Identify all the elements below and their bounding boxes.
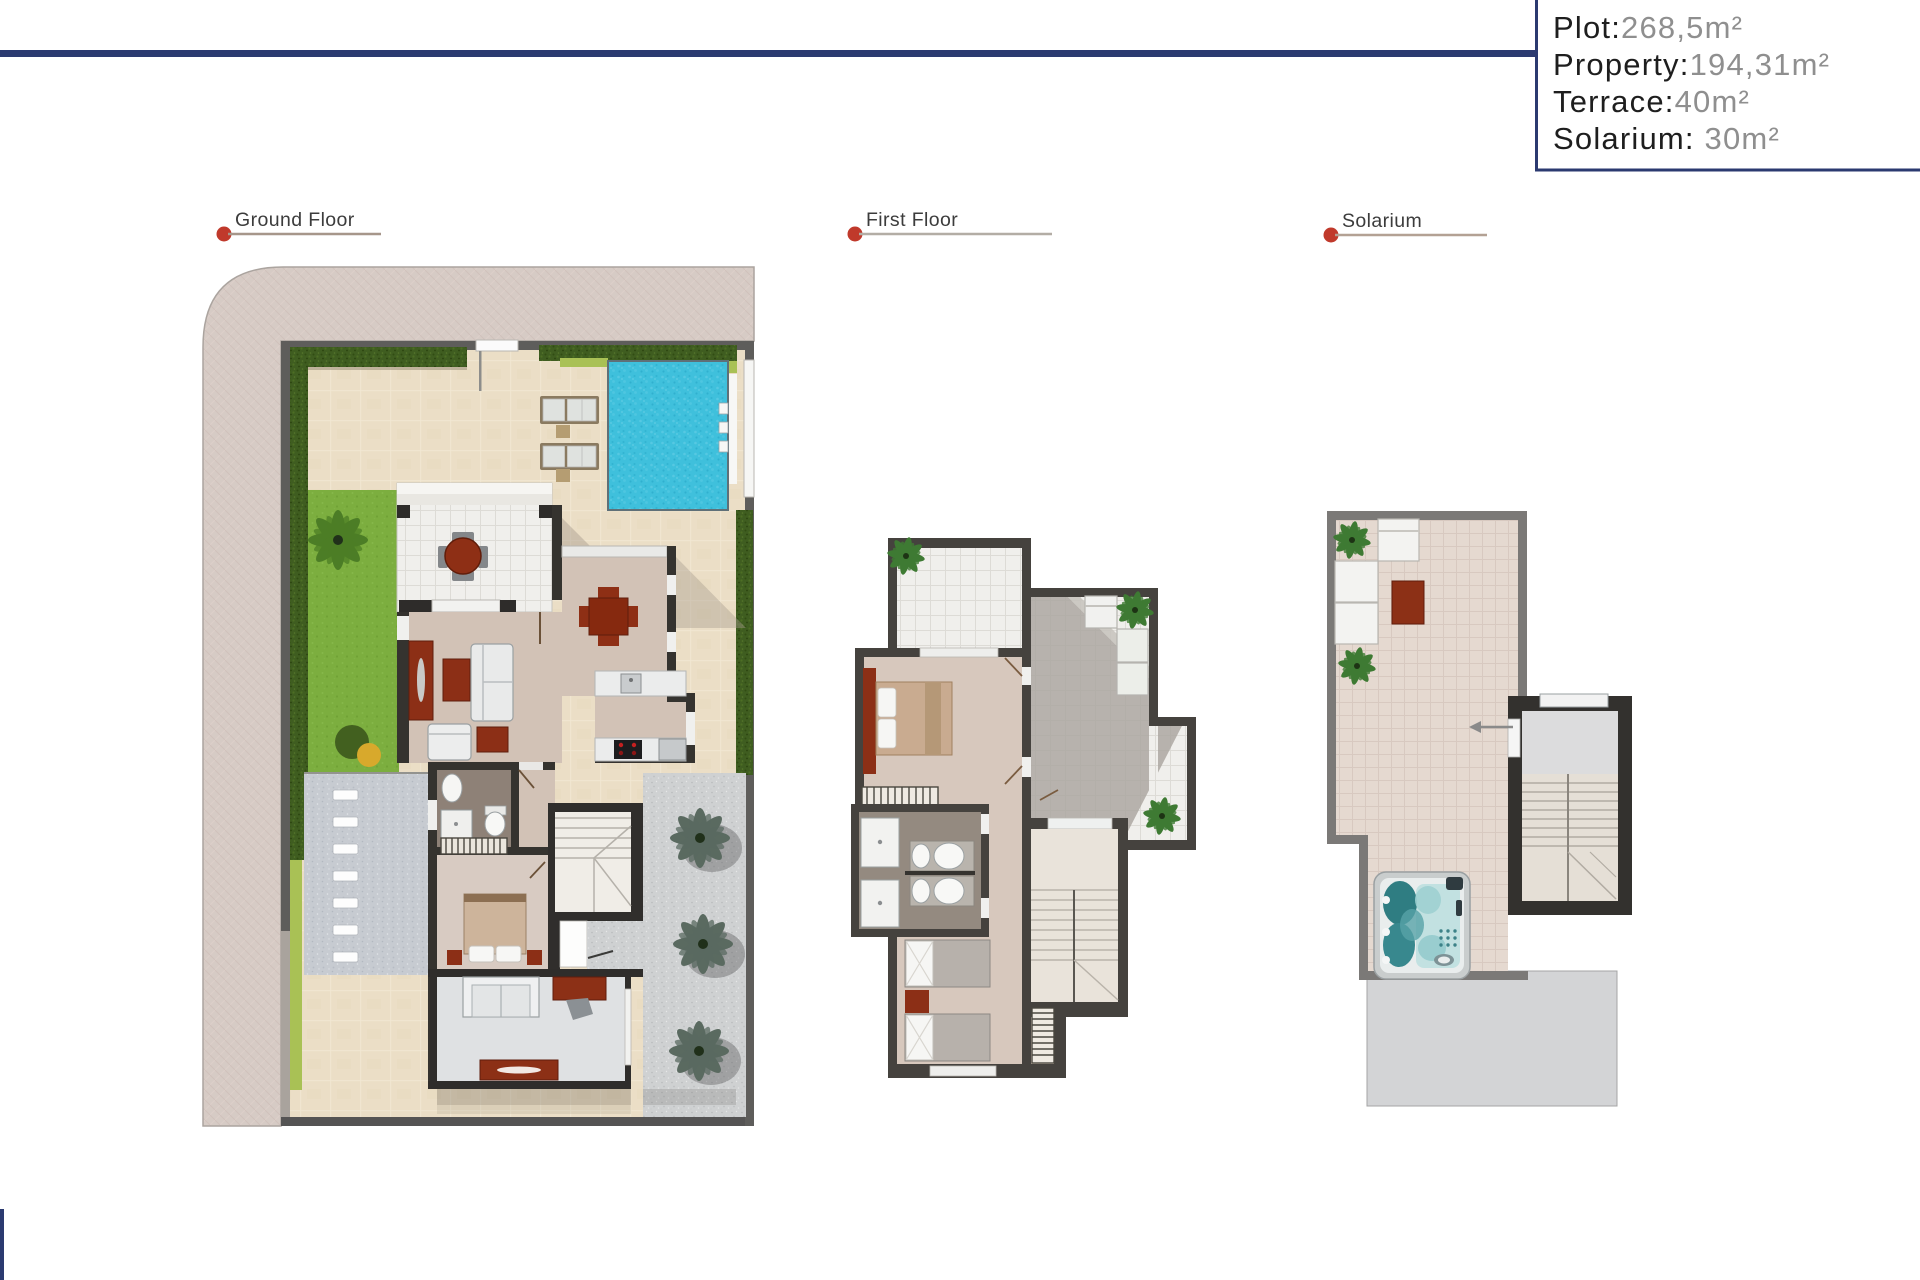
svg-text:First Floor: First Floor [866,209,958,231]
svg-text:Terrace:40m²: Terrace:40m² [1553,84,1750,119]
svg-text:Plot:268,5m²: Plot:268,5m² [1553,10,1743,45]
svg-text:Ground Floor: Ground Floor [235,209,355,231]
svg-text:Solarium: 30m²: Solarium: 30m² [1553,121,1780,156]
svg-text:Property:194,31m²: Property:194,31m² [1553,47,1830,82]
svg-text:Solarium: Solarium [1342,210,1422,232]
